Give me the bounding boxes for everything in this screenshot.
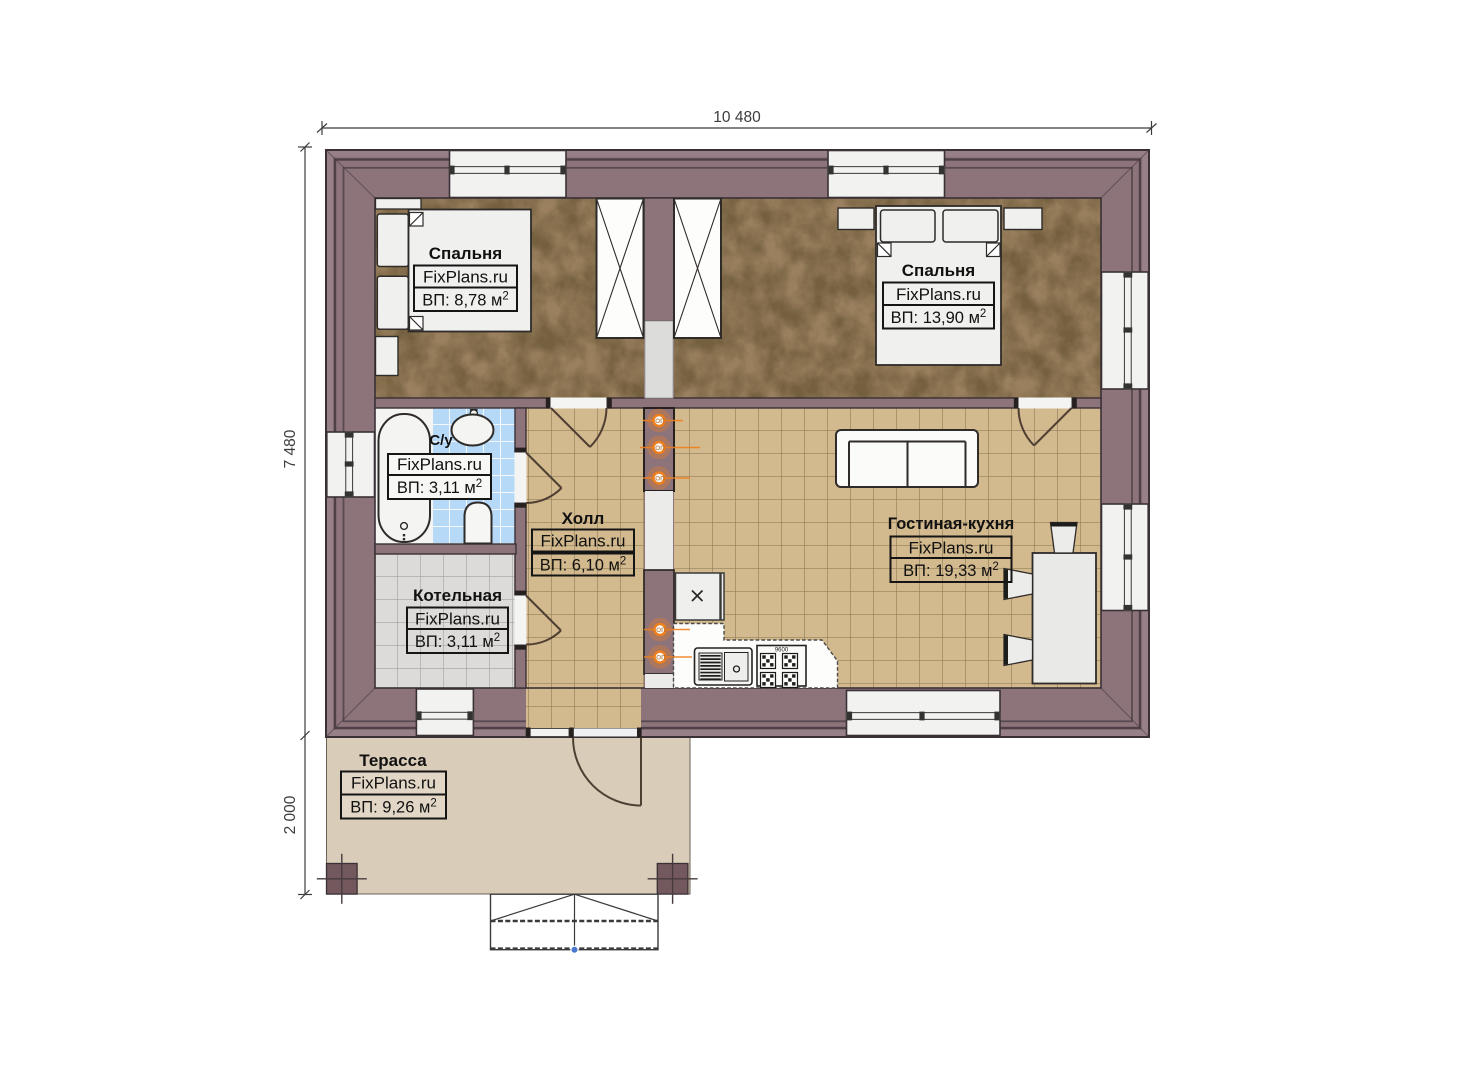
svg-text:7 480: 7 480 [282, 429, 299, 468]
svg-text:Холл: Холл [562, 509, 605, 528]
svg-text:ОП: ОП [656, 627, 666, 634]
svg-text:ВП: 6,10 м2: ВП: 6,10 м2 [540, 556, 626, 575]
svg-text:Гостиная-кухня: Гостиная-кухня [888, 515, 1014, 533]
svg-text:ОП: ОП [656, 655, 666, 662]
svg-text:ОП: ОП [655, 418, 665, 425]
svg-text:FixPlans.ru: FixPlans.ru [423, 268, 508, 287]
svg-text:С/у: С/у [429, 432, 453, 449]
svg-text:FixPlans.ru: FixPlans.ru [415, 609, 500, 628]
svg-text:Терасса: Терасса [359, 751, 427, 770]
svg-text:FixPlans.ru: FixPlans.ru [896, 285, 981, 304]
svg-text:2 000: 2 000 [282, 795, 299, 834]
svg-text:ВП: 3,11 м2: ВП: 3,11 м2 [397, 478, 482, 497]
svg-text:ВП: 3,11 м2: ВП: 3,11 м2 [415, 632, 500, 651]
svg-text:Спальня: Спальня [429, 244, 502, 263]
svg-text:9600: 9600 [775, 648, 789, 654]
svg-text:FixPlans.ru: FixPlans.ru [540, 532, 625, 551]
svg-text:Котельная: Котельная [413, 586, 502, 605]
svg-text:FixPlans.ru: FixPlans.ru [397, 455, 482, 474]
svg-text:Спальня: Спальня [902, 261, 975, 280]
svg-text:FixPlans.ru: FixPlans.ru [908, 538, 993, 557]
svg-text:ОП: ОП [655, 476, 665, 483]
svg-text:ВП: 9,26 м2: ВП: 9,26 м2 [350, 798, 436, 817]
svg-text:ВП: 13,90 м2: ВП: 13,90 м2 [891, 308, 987, 327]
svg-text:ОП: ОП [655, 445, 665, 452]
svg-text:ВП: 8,78 м2: ВП: 8,78 м2 [422, 290, 508, 309]
svg-text:10 480: 10 480 [713, 109, 761, 126]
svg-text:FixPlans.ru: FixPlans.ru [351, 774, 436, 793]
svg-text:ВП: 19,33 м2: ВП: 19,33 м2 [903, 561, 999, 580]
